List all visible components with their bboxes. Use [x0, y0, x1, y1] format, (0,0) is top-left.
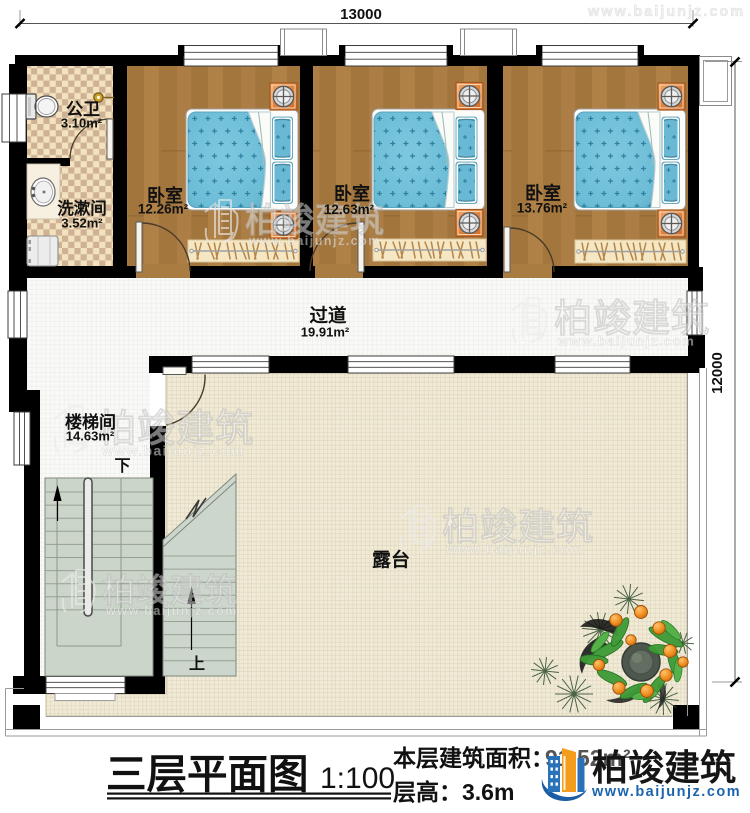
svg-text:www.baijunjz.com: www.baijunjz.com: [587, 4, 745, 20]
svg-text:柏竣建筑: 柏竣建筑: [592, 747, 736, 788]
svg-text:上: 上: [189, 655, 205, 673]
svg-text:www.baijunjz.com: www.baijunjz.com: [248, 234, 381, 248]
svg-text:14.63m²: 14.63m²: [66, 429, 115, 444]
svg-text:13.76m²: 13.76m²: [517, 201, 568, 216]
svg-text:www.baijunjz.com: www.baijunjz.com: [105, 604, 238, 618]
svg-text:12000: 12000: [709, 352, 726, 394]
svg-text:12.63m²: 12.63m²: [324, 202, 375, 217]
svg-text:www.baijunjz.com: www.baijunjz.com: [557, 333, 695, 348]
svg-text:3.52m²: 3.52m²: [61, 216, 103, 231]
svg-text:下: 下: [114, 458, 130, 475]
svg-text:www.baijunjz.com: www.baijunjz.com: [591, 784, 741, 800]
svg-text:3.10m²: 3.10m²: [61, 116, 103, 131]
svg-text:1:100: 1:100: [320, 762, 395, 795]
svg-text:三层平面图: 三层平面图: [106, 751, 309, 797]
svg-text:13000: 13000: [340, 6, 382, 23]
svg-text:www.baijunjz.com: www.baijunjz.com: [445, 541, 583, 556]
svg-text:层高：3.6m: 层高：3.6m: [393, 779, 514, 805]
svg-text:卧室: 卧室: [334, 183, 370, 204]
svg-text:www.baijunjz.com: www.baijunjz.com: [101, 444, 245, 459]
svg-text:19.91m²: 19.91m²: [301, 325, 350, 340]
svg-text:12.26m²: 12.26m²: [138, 202, 189, 217]
svg-text:露台: 露台: [372, 548, 410, 571]
svg-text:过道: 过道: [309, 305, 347, 326]
